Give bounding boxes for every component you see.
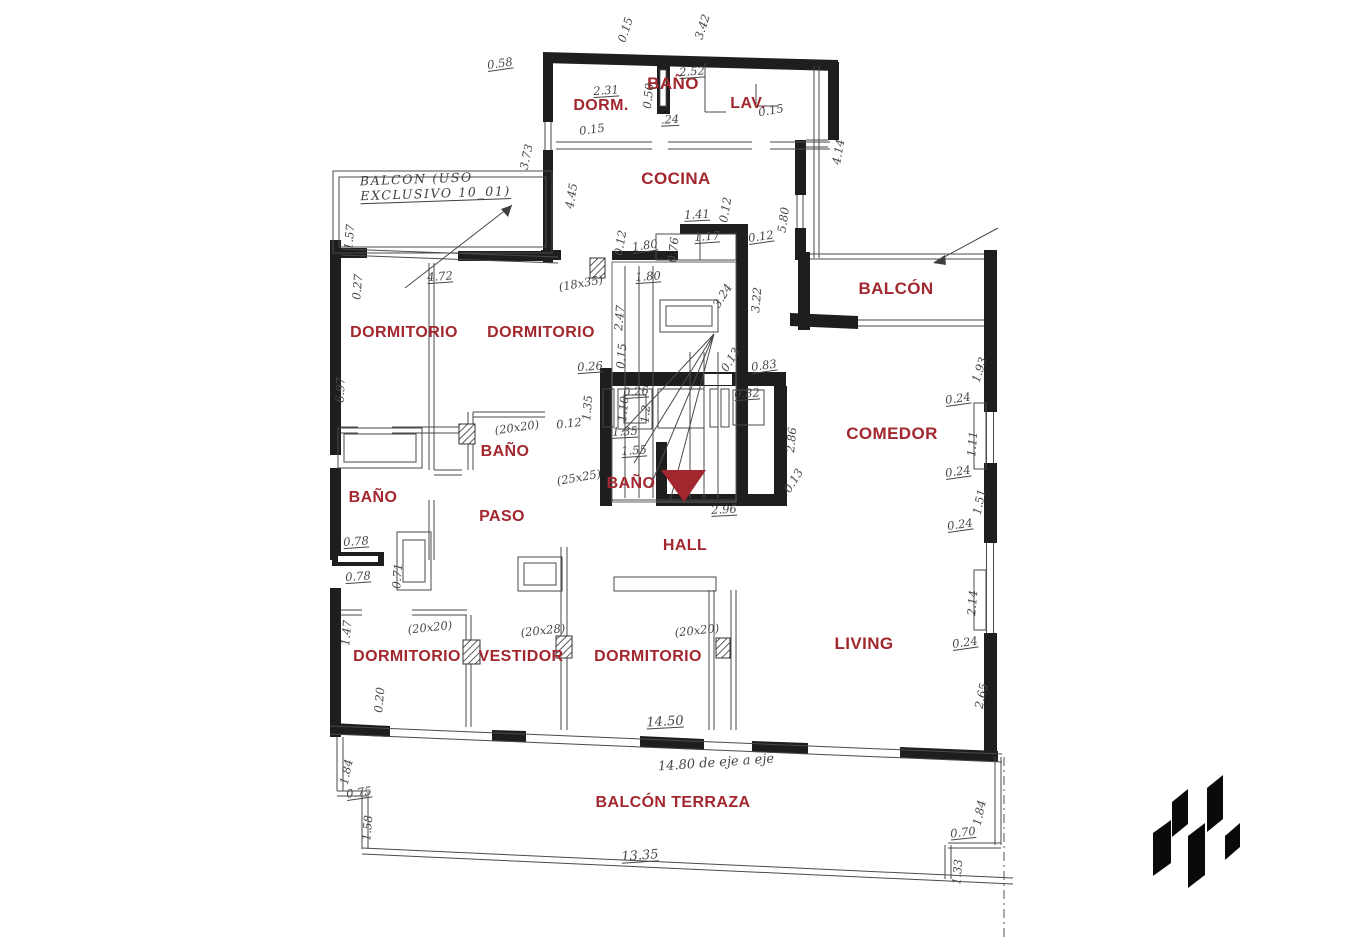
hatched-columns [459,258,730,664]
walls-layer [330,52,998,762]
brand-logo-icon [1153,775,1240,888]
arrowheads [501,205,946,265]
floor-plan-drawing [0,0,1354,950]
floor-plan-canvas: BALCON (USO EXCLUSIVO 10_01) BAÑODORM.LA… [0,0,1354,950]
